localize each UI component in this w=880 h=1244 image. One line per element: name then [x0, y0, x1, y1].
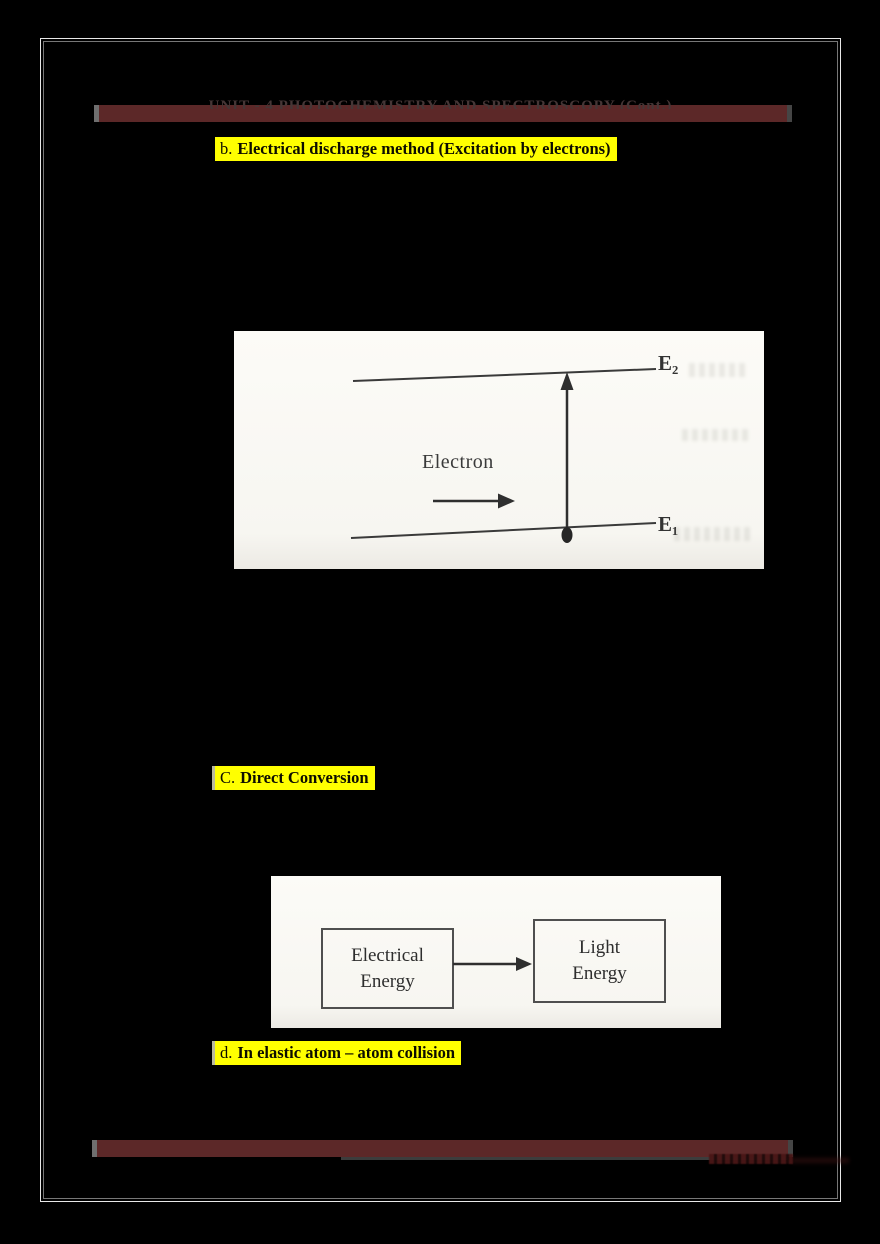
unit-title-clipped: UNIT - 4 PHOTOCHEMISTRY AND SPECTROSCOPY…: [41, 97, 840, 109]
section-c-title: Direct Conversion: [240, 768, 368, 787]
conversion-arrow: [271, 876, 721, 1028]
unit-title-text: UNIT - 4 PHOTOCHEMISTRY AND SPECTROSCOPY…: [209, 98, 673, 109]
footer-rule-bar: [96, 1140, 788, 1157]
section-d-prefix: d.: [220, 1043, 232, 1062]
e2-level-label: E₂: [658, 351, 678, 376]
section-heading-d: d.In elastic atom – atom collision: [212, 1041, 461, 1065]
section-c-prefix: C.: [220, 768, 235, 787]
section-heading-b: b.Electrical discharge method (Excitatio…: [215, 137, 617, 161]
figure-direct-conversion: Electrical Energy Light Energy: [271, 876, 721, 1028]
footer-bar-left-cap: [92, 1140, 97, 1157]
bleed-through-mark: [682, 429, 748, 441]
section-b-title: Electrical discharge method (Excitation …: [237, 139, 610, 158]
figure-energy-levels: E₂ E₁ Electron: [234, 331, 764, 569]
electron-label: Electron: [422, 451, 494, 474]
section-b-prefix: b.: [220, 139, 232, 158]
bleed-through-mark: [674, 527, 754, 541]
section-heading-c: C.Direct Conversion: [212, 766, 375, 790]
bleed-through-mark: [689, 363, 749, 377]
footer-text-illegible-tail: [791, 1158, 849, 1163]
document-page: UNIT - 4 PHOTOCHEMISTRY AND SPECTROSCOPY…: [40, 38, 841, 1202]
footer-text-illegible: [709, 1154, 793, 1164]
section-d-title: In elastic atom – atom collision: [237, 1043, 455, 1062]
